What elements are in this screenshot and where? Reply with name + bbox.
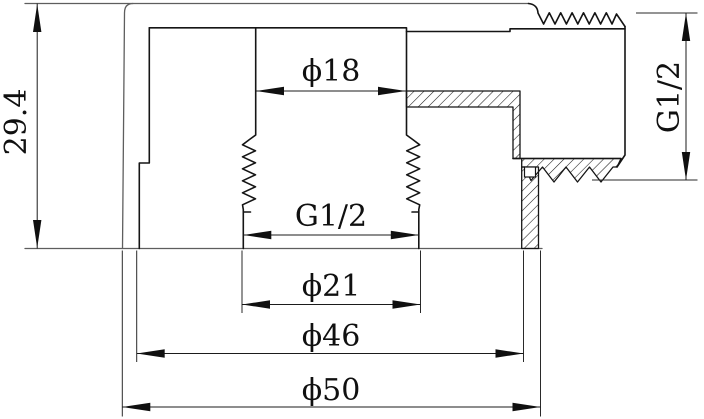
arrow-left-icon bbox=[256, 87, 284, 95]
inner-left-wall bbox=[139, 28, 149, 249]
section-hatching bbox=[407, 91, 622, 249]
drawing-canvas: 29.4 ϕ18 G1/2 ϕ21 ϕ46 ϕ50 bbox=[0, 0, 704, 419]
port-top-thread-profile bbox=[529, 4, 626, 27]
bore-right-thread bbox=[407, 28, 420, 249]
bell-outer-profile bbox=[25, 4, 542, 249]
dimension-center-thread: G1/2 bbox=[243, 199, 418, 239]
port-top-surface-line bbox=[407, 29, 626, 32]
left-outer-wall bbox=[123, 4, 134, 249]
fitting-section-drawing: 29.4 ϕ18 G1/2 ϕ21 ϕ46 ϕ50 bbox=[0, 0, 704, 419]
dim-label-thread-major: ϕ21 bbox=[302, 269, 361, 304]
hatch-right-wall bbox=[522, 167, 539, 249]
arrow-up-icon bbox=[33, 4, 41, 32]
arrow-left-icon bbox=[243, 231, 271, 239]
hatch-l-wall bbox=[407, 91, 521, 159]
arrow-right-icon bbox=[496, 349, 524, 357]
dimension-thread-major: ϕ21 bbox=[242, 251, 421, 314]
dim-label-base-diameter: ϕ50 bbox=[302, 373, 361, 408]
dimension-top-bore: ϕ18 bbox=[256, 54, 406, 95]
dimension-side-thread: G1/2 bbox=[592, 13, 698, 180]
arrow-left-icon bbox=[122, 403, 150, 411]
arrow-right-icon bbox=[513, 403, 541, 411]
port-end-face bbox=[617, 27, 625, 168]
dim-label-center-thread: G1/2 bbox=[295, 199, 367, 234]
arrow-right-icon bbox=[378, 87, 406, 95]
arrow-left-icon bbox=[137, 349, 165, 357]
arrow-left-icon bbox=[242, 300, 270, 308]
dimension-body-diameter: ϕ46 bbox=[137, 251, 524, 363]
arrow-down-icon bbox=[682, 152, 690, 180]
dim-label-top-bore: ϕ18 bbox=[302, 54, 361, 89]
arrow-right-icon bbox=[391, 231, 419, 239]
dim-label-overall-height: 29.4 bbox=[0, 89, 34, 156]
dim-label-side-thread: G1/2 bbox=[652, 61, 687, 133]
dimension-overall-height: 29.4 bbox=[0, 4, 41, 249]
arrow-right-icon bbox=[393, 300, 421, 308]
arrow-up-icon bbox=[682, 13, 690, 41]
arrow-down-icon bbox=[33, 220, 41, 248]
bore-left-thread bbox=[243, 28, 256, 249]
thread-relief-groove bbox=[525, 167, 536, 177]
dim-label-body-diameter: ϕ46 bbox=[302, 319, 361, 354]
